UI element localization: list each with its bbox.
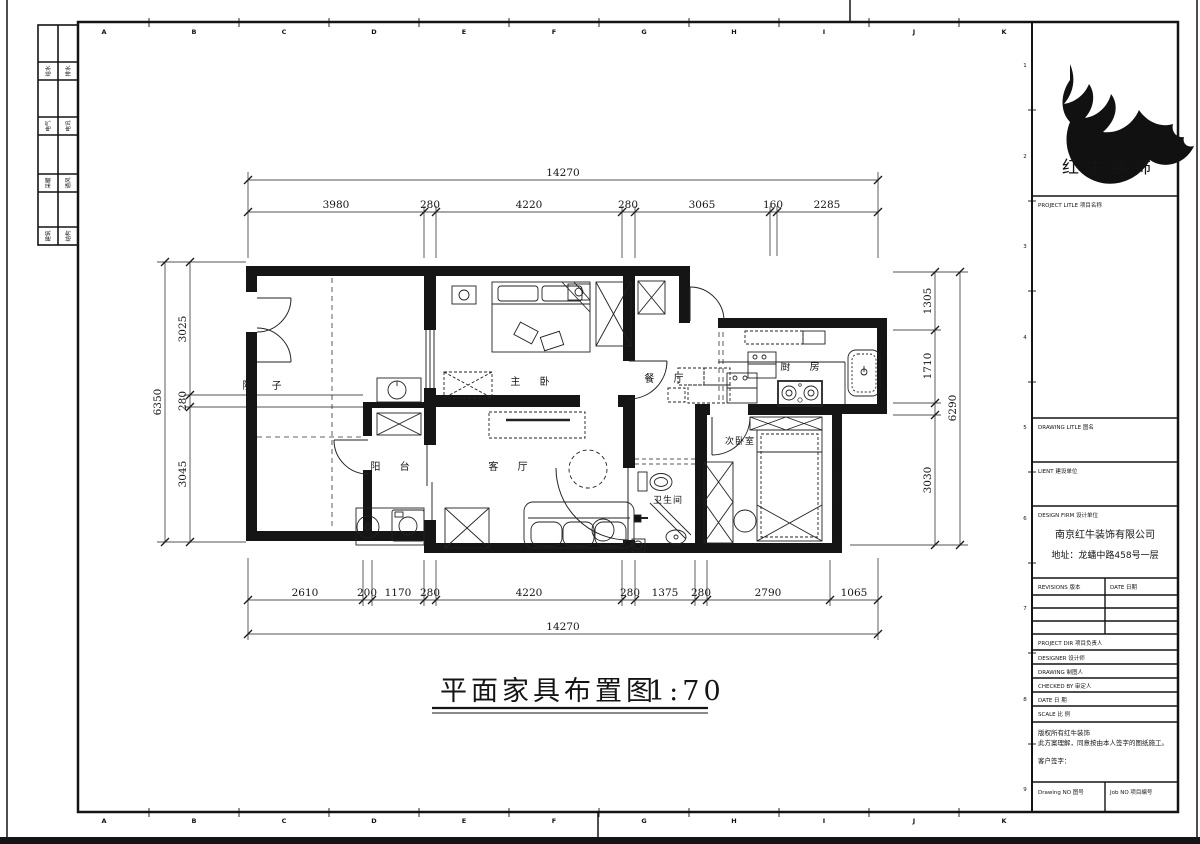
furniture-living [445,412,634,548]
tv-cabinet [489,412,585,438]
svg-text:Drawing NO 图号: Drawing NO 图号 [1038,788,1084,796]
door-bedroom2 [712,417,750,455]
svg-text:200: 200 [357,587,377,599]
sofa [524,502,634,548]
logo-text: 红牛装饰 [1062,158,1158,178]
grid-letters-top: A B C D E F G H I J K [101,18,1007,36]
svg-text:4220: 4220 [516,199,543,211]
svg-text:1: 1 [1023,63,1027,69]
svg-text:6350: 6350 [152,389,164,416]
svg-text:8: 8 [1023,697,1027,703]
svg-text:A: A [101,817,106,825]
svg-text:D: D [371,817,377,825]
svg-text:DATE 日 期: DATE 日 期 [1038,697,1067,704]
toilet [638,472,672,491]
svg-text:A: A [101,28,106,36]
svg-text:结构: 结构 [64,230,72,242]
svg-text:DRAWING 制图人: DRAWING 制图人 [1038,668,1083,676]
svg-text:电讯: 电讯 [64,120,72,132]
grid-numbers-right: 1 2 3 4 5 6 7 8 9 [1023,63,1036,793]
svg-text:DESIGN FIRM 设计单位: DESIGN FIRM 设计单位 [1038,511,1099,519]
plan-title-scale: 1:70 [648,676,725,707]
svg-text:PROJECT DIR 项目负责人: PROJECT DIR 项目负责人 [1038,639,1103,647]
label-kitchen: 厨 房 [780,360,827,373]
firm-name: 南京红牛装饰有限公司 [1055,528,1155,541]
svg-text:2: 2 [1023,154,1027,160]
svg-text:REVISIONS 版本: REVISIONS 版本 [1038,583,1081,591]
svg-text:280: 280 [177,391,189,411]
side-cabinet [445,508,489,548]
svg-text:9: 9 [1023,787,1027,793]
sliding-door-balcony [427,445,432,520]
floor-drain [634,515,641,522]
dining-chair [704,368,730,385]
dim-top [244,172,882,258]
svg-text:280: 280 [420,199,440,211]
svg-text:通风: 通风 [64,177,72,189]
pillow [542,286,582,301]
svg-text:E: E [462,28,466,36]
svg-text:14270: 14270 [546,167,579,179]
svg-text:280: 280 [620,587,640,599]
svg-text:PROJECT LITLE 项目名称: PROJECT LITLE 项目名称 [1038,201,1102,209]
svg-text:C: C [282,28,287,36]
svg-text:160: 160 [763,199,783,211]
svg-text:6290: 6290 [947,395,959,422]
label-bathroom: 卫生间 [653,494,683,506]
wardrobe-bedroom2 [704,462,733,543]
plan-title-text: 平面家具布置图 [440,676,657,707]
furniture-bedroom2 [704,417,822,543]
door-entry [690,287,724,321]
svg-text:建筑: 建筑 [44,230,52,242]
furniture-foyer [638,281,665,314]
svg-text:D: D [371,28,377,36]
svg-text:Job NO 项目编号: Job NO 项目编号 [1109,788,1153,796]
overhead-cabinet [750,417,822,430]
svg-text:5: 5 [1023,425,1027,431]
stove [778,381,822,406]
svg-text:3980: 3980 [323,199,350,211]
stool [734,510,756,532]
svg-text:C: C [282,817,287,825]
svg-text:版权所有红牛装饰: 版权所有红牛装饰 [1038,728,1091,737]
hood [803,331,825,344]
svg-text:给水: 给水 [44,65,52,77]
svg-text:280: 280 [691,587,711,599]
furniture-bathroom [632,472,691,552]
svg-text:3065: 3065 [689,199,716,211]
firm-address: 地址：龙蟠中路458号一层 [1051,549,1158,561]
svg-text:2790: 2790 [755,587,782,599]
grid-letters-bottom: A B C D E F G H I J K [101,808,1007,825]
svg-text:DESIGNER 设计师: DESIGNER 设计师 [1038,654,1085,662]
svg-text:G: G [641,817,646,825]
dining-table [688,385,730,403]
svg-text:此方案理解，同意按由本人签字的图纸施工。: 此方案理解，同意按由本人签字的图纸施工。 [1038,738,1168,747]
dining-chair [668,388,685,402]
armchair [514,322,538,344]
svg-text:排水: 排水 [64,65,72,77]
balcony-cabinet [377,413,421,435]
blanket-fold [562,282,590,312]
svg-text:1065: 1065 [841,587,868,599]
title-block: 红牛装饰 PROJECT LITLE 项目名称 DRAWING LITLE 图名… [1032,64,1194,812]
svg-text:1375: 1375 [652,587,679,599]
svg-text:E: E [462,817,466,825]
tall-cabinet [727,373,757,403]
sheet-outer-marks [0,0,1200,844]
svg-text:K: K [1001,817,1007,825]
shoe-cabinet [638,281,665,314]
svg-text:I: I [823,28,825,36]
svg-text:LIENT 建设单位: LIENT 建设单位 [1038,467,1078,475]
round-table [569,450,607,488]
svg-text:H: H [731,28,736,36]
svg-text:B: B [192,28,197,36]
svg-text:采暖: 采暖 [44,177,52,189]
door-courtyard-balcony [334,440,368,474]
svg-text:3030: 3030 [922,467,934,494]
svg-text:电气: 电气 [44,120,52,132]
label-living: 客 厅 [488,460,535,473]
svg-text:1305: 1305 [922,288,934,315]
svg-text:DRAWING LITLE 图名: DRAWING LITLE 图名 [1038,423,1094,431]
svg-text:7: 7 [1023,606,1027,612]
label-bedroom2: 次卧室 [725,435,755,447]
bed2 [757,430,822,541]
label-master-bedroom: 主 卧 [510,375,557,388]
room-labels: 院 子 主 卧 餐 厅 厨 房 阳 台 客 厅 卫生间 次卧室 [242,360,827,506]
svg-text:DATE 日期: DATE 日期 [1110,584,1138,591]
svg-text:G: G [641,28,646,36]
drawing-title: 平面家具布置图 1:70 [432,676,725,713]
svg-text:280: 280 [618,199,638,211]
svg-text:J: J [912,817,915,825]
upper-cabinet [745,331,803,344]
door-courtyard-west [257,298,291,362]
svg-text:6: 6 [1023,516,1027,522]
wash-basin [666,530,686,544]
svg-text:3045: 3045 [177,461,189,488]
door-bathroom-threshold [635,459,695,464]
kitchen-sink [848,350,880,396]
svg-text:I: I [823,817,825,825]
svg-text:4220: 4220 [516,587,543,599]
svg-text:1170: 1170 [385,587,412,599]
svg-text:SCALE 比 例: SCALE 比 例 [1038,710,1071,718]
discipline-tab-strip [38,25,78,245]
svg-text:14270: 14270 [546,621,579,633]
armchair [540,331,563,350]
svg-text:280: 280 [420,587,440,599]
wash-basin-courtyard [377,378,421,402]
svg-text:B: B [192,817,197,825]
svg-text:客户签字：: 客户签字： [1038,756,1071,765]
svg-text:K: K [1001,28,1007,36]
svg-text:CHECKED BY 审定人: CHECKED BY 审定人 [1038,682,1092,690]
walls [246,266,887,553]
bench-cabinet [444,372,492,398]
svg-text:H: H [731,817,736,825]
svg-text:4: 4 [1023,335,1027,341]
svg-text:2285: 2285 [814,199,841,211]
svg-text:3: 3 [1023,244,1027,250]
small-appliance [748,352,776,378]
label-dining: 餐 厅 [644,372,691,385]
floor-plan: 院 子 主 卧 餐 厅 厨 房 阳 台 客 厅 卫生间 次卧室 [242,266,887,553]
svg-text:J: J [912,28,915,36]
svg-text:F: F [552,817,556,825]
window-master-west [426,330,434,388]
svg-text:1710: 1710 [922,353,934,380]
label-courtyard: 院 子 [242,379,289,392]
label-balcony: 阳 台 [370,460,417,473]
svg-text:F: F [552,28,556,36]
svg-text:3025: 3025 [177,316,189,343]
svg-text:2610: 2610 [292,587,319,599]
pillow [498,286,538,301]
nightstand [452,286,476,304]
drawing-sheet: A B C D E F G H I J K A B C D E F G H I … [0,0,1200,844]
